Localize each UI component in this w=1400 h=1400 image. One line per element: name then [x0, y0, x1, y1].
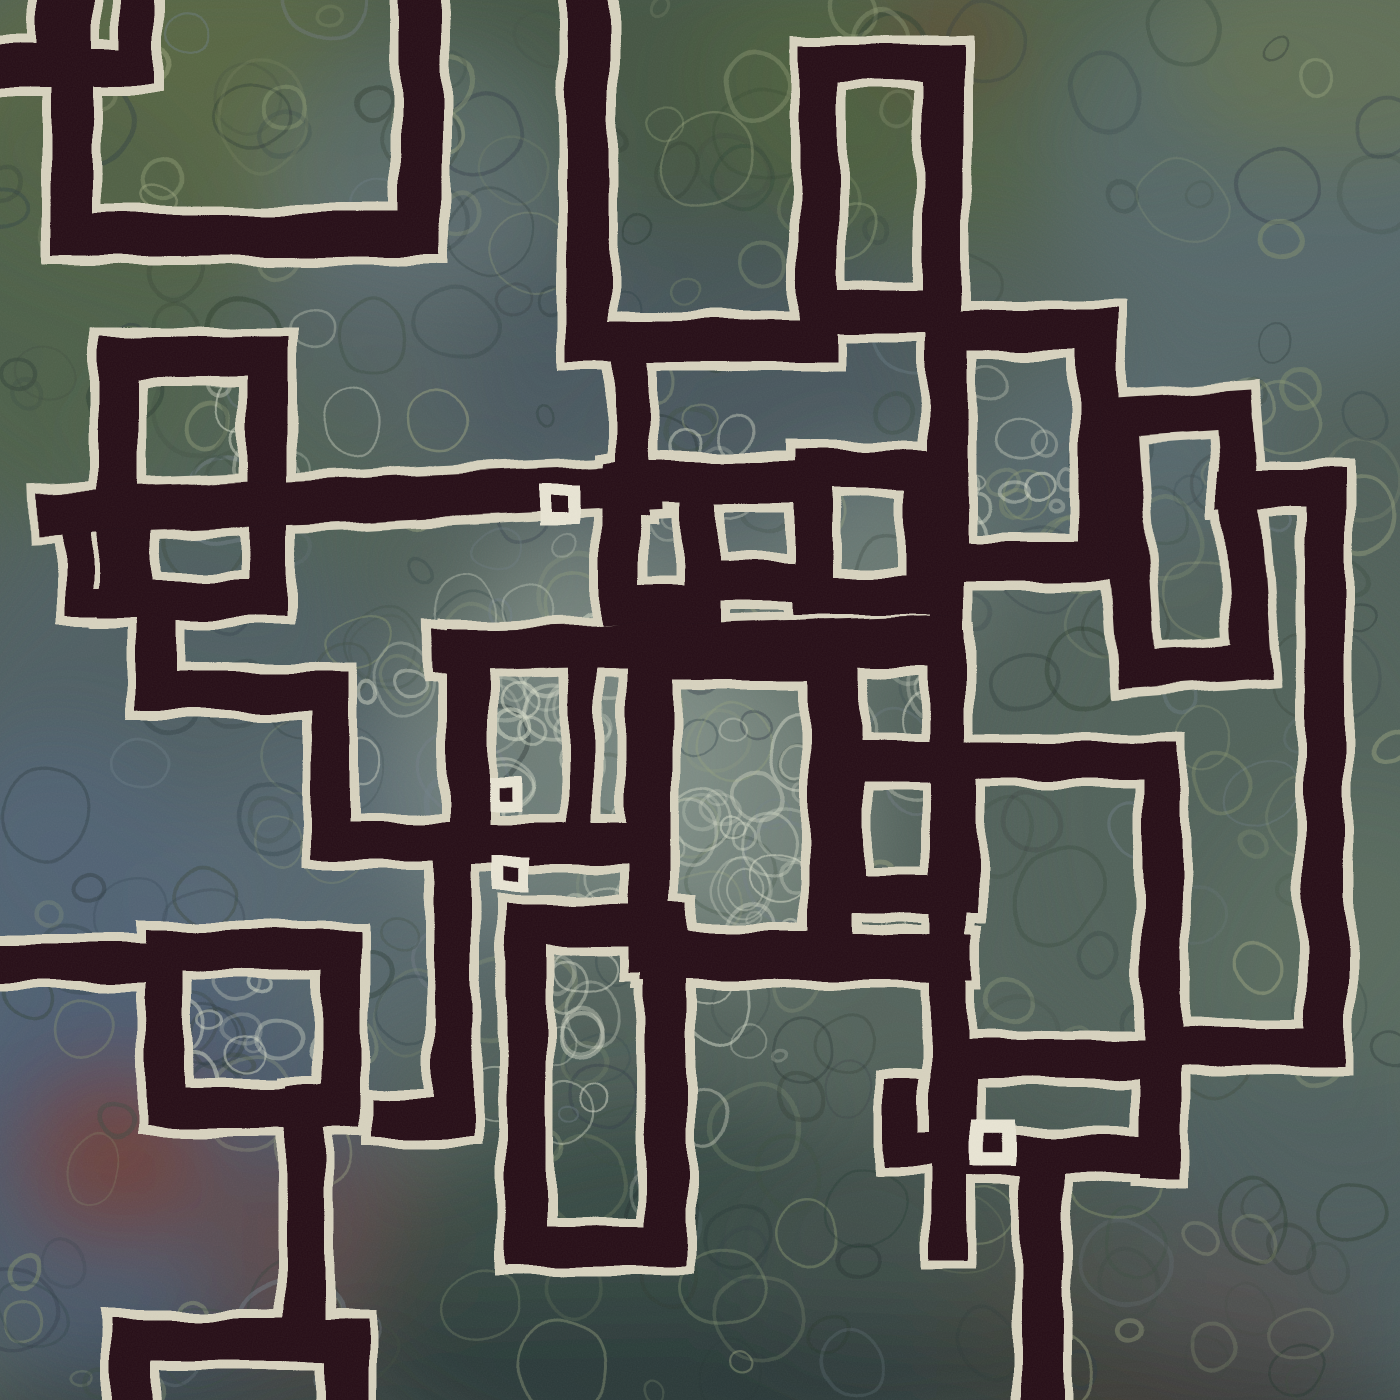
grain-overlay	[0, 0, 1400, 1400]
page	[0, 0, 1400, 1400]
painting-canvas	[0, 0, 1400, 1400]
abstract-painting	[0, 0, 1400, 1400]
